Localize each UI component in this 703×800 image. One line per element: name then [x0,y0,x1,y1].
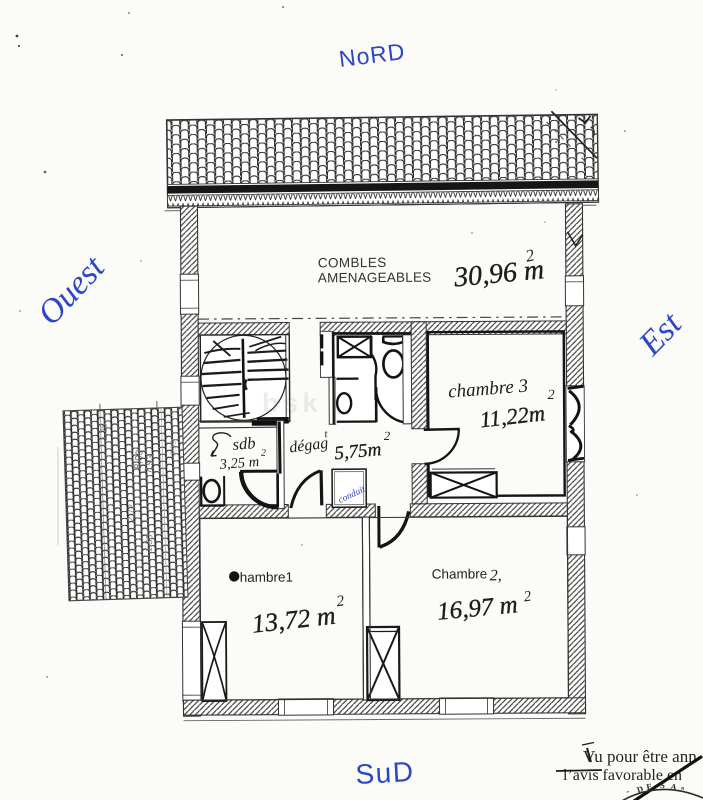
svg-text:1,25: 1,25 [98,423,109,441]
svg-text:2: 2 [384,429,390,443]
svg-text:hambre1: hambre1 [240,570,293,585]
svg-text:2,: 2, [490,567,502,584]
svg-text:3,99: 3,99 [169,440,178,456]
svg-text:2: 2 [548,388,555,403]
svg-text:3,25 m: 3,25 m [218,454,260,473]
svg-text:Chambre: Chambre [432,566,488,581]
svg-text:2: 2 [261,448,266,459]
svg-text:AMENAGEABLES: AMENAGEABLES [318,270,432,286]
svg-text:SuD: SuD [355,756,416,790]
svg-text:bsk: bsk [262,388,322,418]
svg-text:S: S [660,780,665,790]
svg-text:2,72: 2,72 [126,504,137,522]
svg-text:Vu pour être ann: Vu pour être ann [583,747,697,766]
svg-text:1,50: 1,50 [144,534,155,552]
svg-text:COMBLES: COMBLES [318,255,387,270]
svg-text:sdb: sdb [232,433,256,454]
svg-text:5,75m: 5,75m [334,439,383,464]
